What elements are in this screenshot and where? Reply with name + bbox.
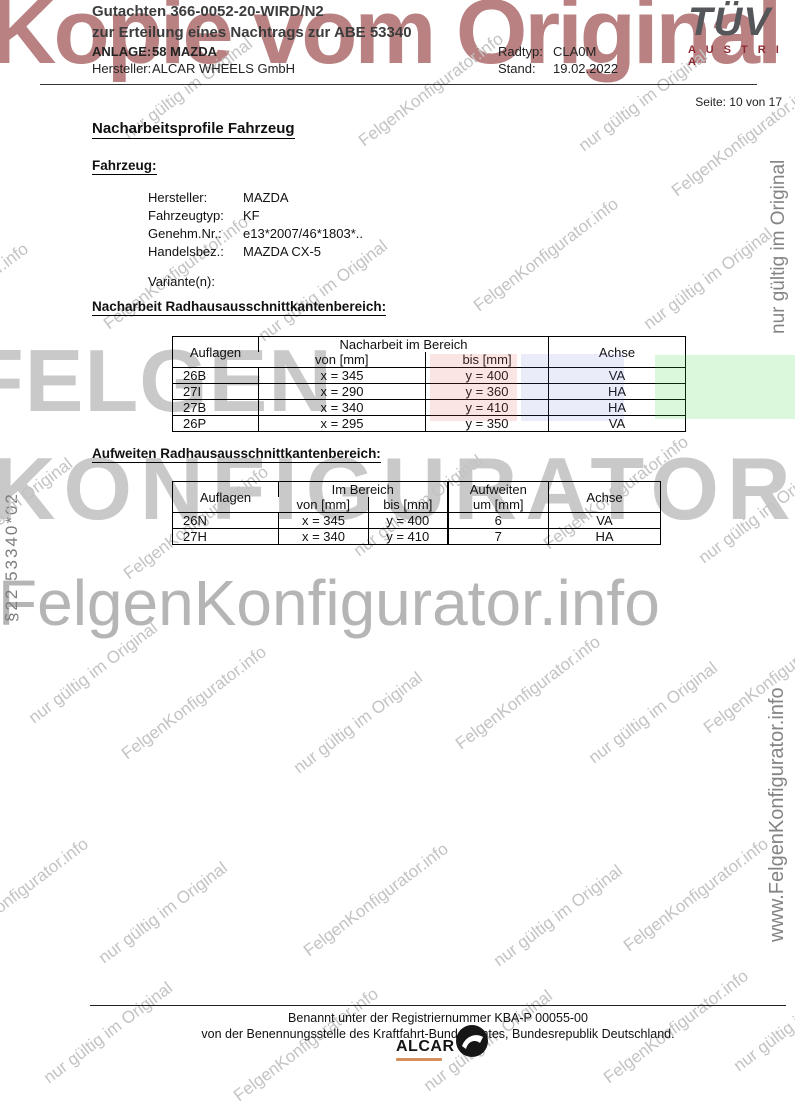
tuv-logo-text: TÜV <box>688 2 788 42</box>
table2-heading: Aufweiten Radhausausschnittkantenbereich… <box>92 446 381 463</box>
table-row: 27I x = 290 y = 360 HA <box>173 384 686 400</box>
hersteller-header-label: Hersteller: <box>92 61 151 76</box>
col-header-bereich: Im Bereich <box>279 482 448 498</box>
cell-auflage: 26N <box>173 513 279 529</box>
nacharbeit-table: Auflagen Nacharbeit im Bereich Achse von… <box>172 336 686 432</box>
aufweiten-table: Auflagen Im Bereich Aufweiten Achse von … <box>172 481 661 545</box>
document-content: Gutachten 366-0052-20-WIRD/N2 zur Erteil… <box>0 0 795 1074</box>
cell-achse: VA <box>549 368 686 384</box>
table-row: 27B x = 340 y = 410 HA <box>173 400 686 416</box>
radtyp-value: CLA0M <box>553 44 596 59</box>
cell-von: x = 345 <box>259 368 426 384</box>
cell-bis: y = 350 <box>426 416 549 432</box>
field-label-hersteller: Hersteller: <box>148 190 207 205</box>
table-row: 27H x = 340 y = 410 7 HA <box>173 529 661 545</box>
col-header-auflagen: Auflagen <box>173 482 279 513</box>
tuv-austria-text: A U S T R I A <box>688 44 788 68</box>
radtyp-label: Radtyp: <box>498 44 543 59</box>
cell-bis: y = 410 <box>426 400 549 416</box>
cell-von: x = 345 <box>279 513 369 529</box>
col-header-von: von [mm] <box>279 497 369 513</box>
col-header-bis: bis [mm] <box>369 497 448 513</box>
col-header-auflagen: Auflagen <box>173 337 259 368</box>
field-value-genehm-nr: e13*2007/46*1803*.. <box>243 226 363 241</box>
cell-bis: y = 400 <box>426 368 549 384</box>
tuv-austria-logo: TÜV A U S T R I A <box>688 2 788 68</box>
cell-achse: VA <box>549 416 686 432</box>
cell-bis: y = 400 <box>369 513 448 529</box>
cell-von: x = 295 <box>259 416 426 432</box>
footer-divider <box>90 1005 786 1006</box>
nacharbeit-table-grid: Auflagen Nacharbeit im Bereich Achse von… <box>172 336 686 432</box>
page-number: Seite: 10 von 17 <box>650 95 782 109</box>
cell-achse: VA <box>549 513 661 529</box>
field-value-hersteller: MAZDA <box>243 190 289 205</box>
cell-auflage: 27H <box>173 529 279 545</box>
cell-bis: y = 360 <box>426 384 549 400</box>
alcar-logo: ALCAR <box>396 1036 506 1063</box>
stand-label: Stand: <box>498 61 536 76</box>
cell-von: x = 340 <box>279 529 369 545</box>
field-label-handelsbez: Handelsbez.: <box>148 244 224 259</box>
cell-achse: HA <box>549 384 686 400</box>
field-value-fahrzeugtyp: KF <box>243 208 260 223</box>
cell-aufweiten: 6 <box>448 513 549 529</box>
field-value-handelsbez: MAZDA CX-5 <box>243 244 321 259</box>
fahrzeug-heading: Fahrzeug: <box>92 158 157 175</box>
table-row: 26B x = 345 y = 400 VA <box>173 368 686 384</box>
cell-auflage: 26P <box>173 416 259 432</box>
field-label-fahrzeugtyp: Fahrzeugtyp: <box>148 208 224 223</box>
col-header-um-mm: um [mm] <box>448 497 549 513</box>
col-header-achse: Achse <box>549 337 686 368</box>
page-title: Nacharbeitsprofile Fahrzeug <box>92 120 295 139</box>
footer-line1: Benannt unter der Registriernummer KBA-P… <box>90 1010 786 1026</box>
document-title-line2: zur Erteilung eines Nachtrags zur ABE 53… <box>92 24 412 41</box>
cell-auflage: 27B <box>173 400 259 416</box>
anlage-value: 58 MAZDA <box>152 44 217 59</box>
field-label-genehm-nr: Genehm.Nr.: <box>148 226 222 241</box>
document-page: { "header": { "title_line1": "Gutachten … <box>0 0 795 1074</box>
varianten-label: Variante(n): <box>148 274 215 289</box>
table1-heading: Nacharbeit Radhausausschnittkantenbereic… <box>92 299 386 316</box>
col-header-aufweiten: Aufweiten <box>448 482 549 498</box>
cell-bis: y = 410 <box>369 529 448 545</box>
cell-auflage: 26B <box>173 368 259 384</box>
cell-achse: HA <box>549 529 661 545</box>
hersteller-header-value: ALCAR WHEELS GmbH <box>152 61 295 76</box>
col-header-achse: Achse <box>549 482 661 513</box>
alcar-logo-emblem <box>455 1024 489 1063</box>
cell-achse: HA <box>549 400 686 416</box>
table-row: 26P x = 295 y = 350 VA <box>173 416 686 432</box>
col-header-bereich: Nacharbeit im Bereich <box>259 337 549 353</box>
cell-aufweiten: 7 <box>448 529 549 545</box>
document-title-line1: Gutachten 366-0052-20-WIRD/N2 <box>92 3 324 20</box>
table-header-row: Auflagen Im Bereich Aufweiten Achse <box>173 482 661 498</box>
cell-von: x = 340 <box>259 400 426 416</box>
anlage-label: ANLAGE: <box>92 44 151 59</box>
col-header-bis: bis [mm] <box>426 352 549 368</box>
alcar-logo-text: ALCAR <box>396 1038 455 1056</box>
table-row: 26N x = 345 y = 400 6 VA <box>173 513 661 529</box>
stand-value: 19.02.2022 <box>553 61 618 76</box>
cell-auflage: 27I <box>173 384 259 400</box>
aufweiten-table-grid: Auflagen Im Bereich Aufweiten Achse von … <box>172 481 661 545</box>
col-header-von: von [mm] <box>259 352 426 368</box>
table-header-row: Auflagen Nacharbeit im Bereich Achse <box>173 337 686 353</box>
alcar-logo-tagline <box>396 1058 442 1061</box>
header-divider <box>40 84 757 85</box>
cell-von: x = 290 <box>259 384 426 400</box>
